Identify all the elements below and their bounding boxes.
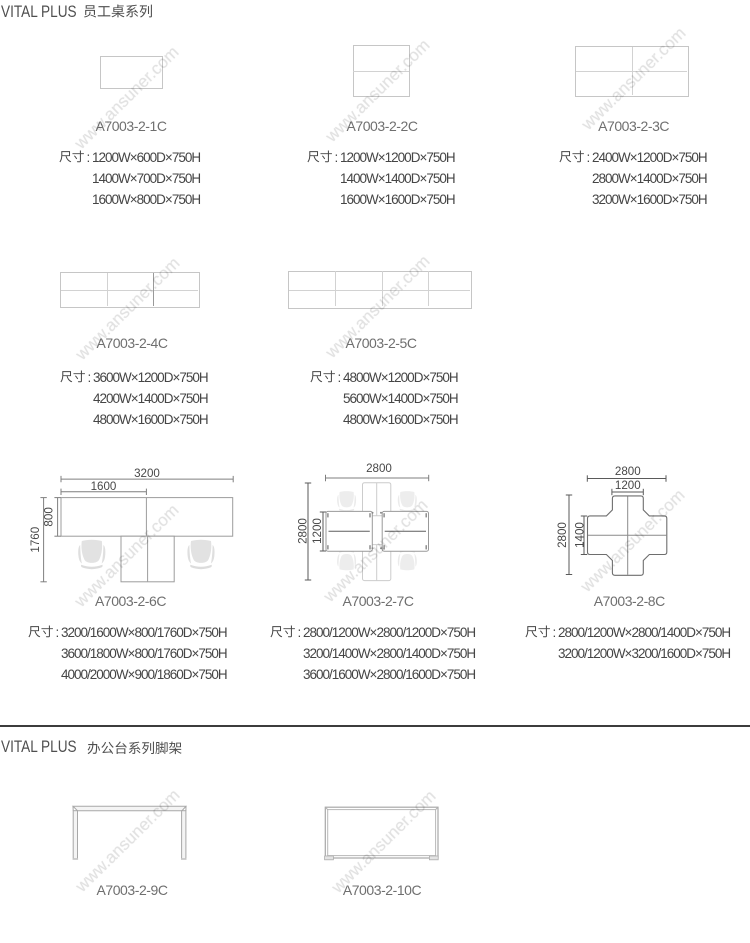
svg-text:2800: 2800 bbox=[556, 522, 569, 548]
svg-text:1400: 1400 bbox=[574, 522, 587, 548]
svg-text:1600: 1600 bbox=[91, 480, 117, 493]
svg-text:1760: 1760 bbox=[29, 527, 42, 553]
svg-text:1200: 1200 bbox=[311, 518, 324, 544]
svg-text:3200: 3200 bbox=[134, 467, 160, 480]
svg-text:2800: 2800 bbox=[615, 465, 641, 478]
svg-text:2800: 2800 bbox=[297, 518, 310, 544]
svg-text:800: 800 bbox=[43, 507, 56, 526]
svg-text:1200: 1200 bbox=[615, 479, 641, 492]
svg-text:2800: 2800 bbox=[366, 462, 392, 475]
